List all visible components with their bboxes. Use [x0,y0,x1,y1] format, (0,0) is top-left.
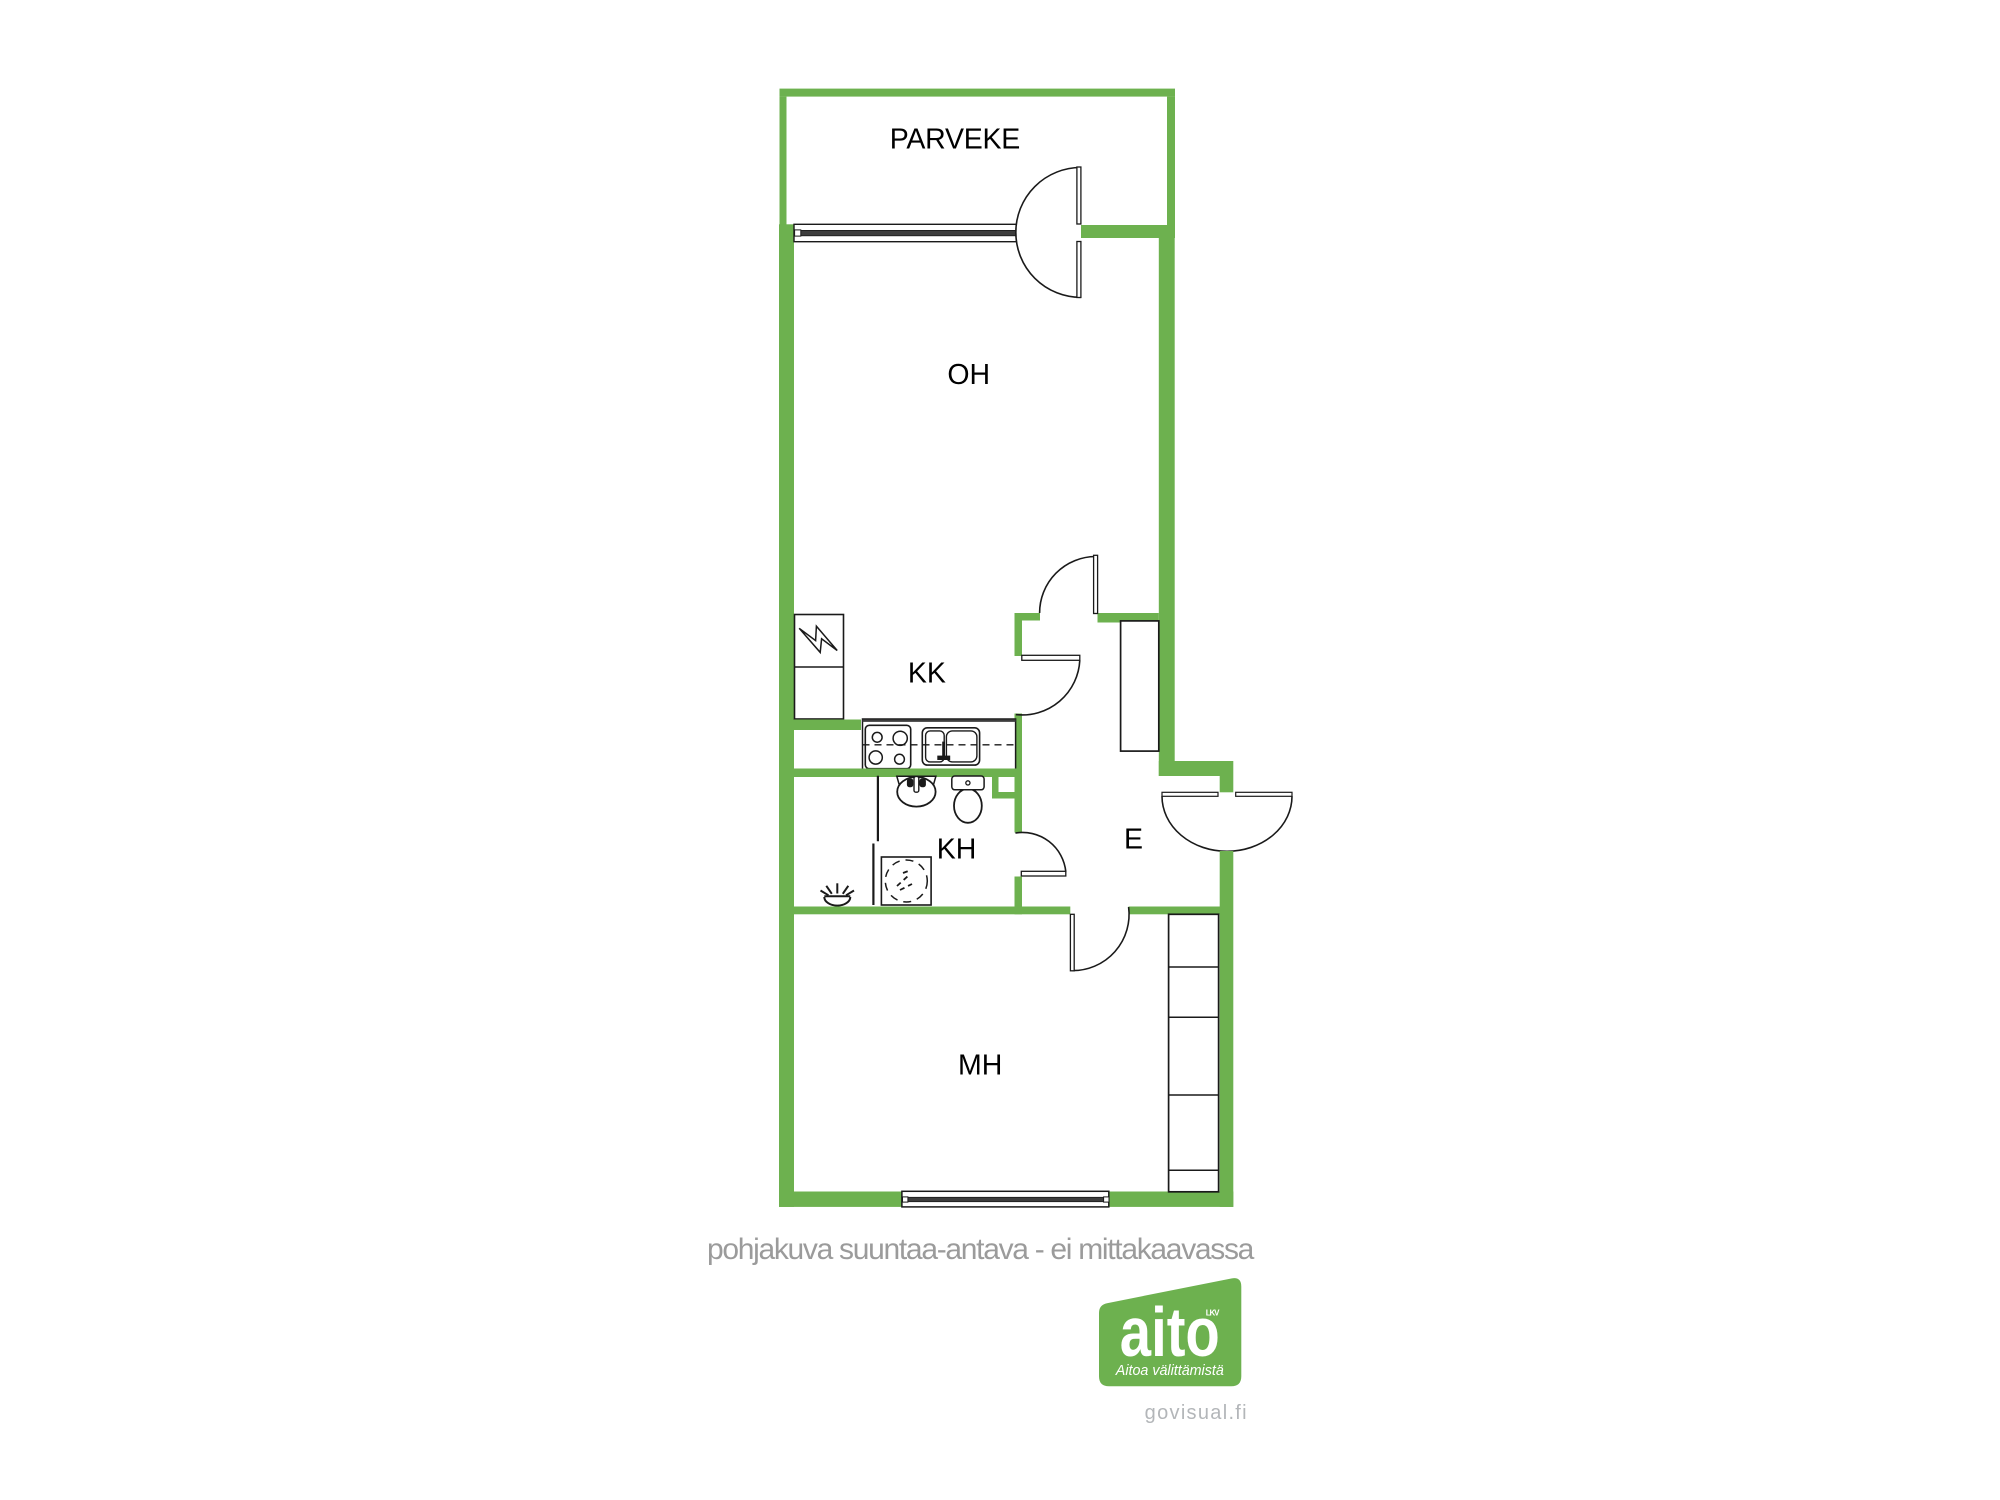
svg-text:PARVEKE: PARVEKE [890,124,1020,156]
svg-text:LKV: LKV [1206,1308,1221,1317]
svg-text:Aitoa välittämistä: Aitoa välittämistä [1115,1362,1224,1379]
svg-text:E: E [1124,824,1143,856]
svg-text:KK: KK [908,658,946,690]
svg-text:govisual.fi: govisual.fi [1145,1402,1248,1424]
svg-text:MH: MH [958,1050,1002,1082]
svg-text:OH: OH [947,359,990,391]
svg-text:aito: aito [1120,1293,1220,1371]
svg-text:pohjakuva suuntaa-antava - ei: pohjakuva suuntaa-antava - ei mittakaava… [707,1233,1255,1266]
svg-text:KH: KH [937,833,977,865]
